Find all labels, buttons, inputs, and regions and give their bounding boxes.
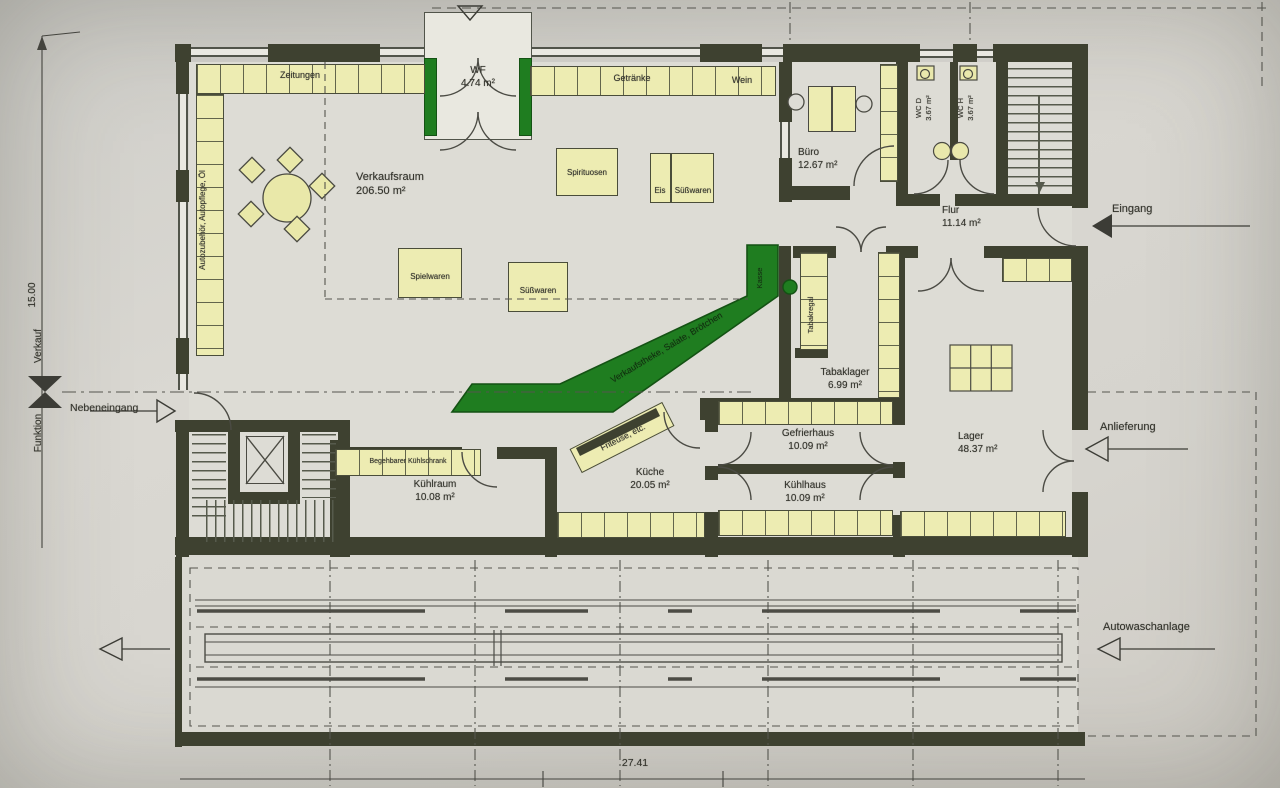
- window: [530, 47, 700, 57]
- annotation-anlieferung: Anlieferung: [1100, 420, 1200, 434]
- room-area: 206.50 m²: [356, 184, 486, 198]
- wall: [779, 246, 791, 412]
- room-name: WC H: [956, 98, 965, 118]
- carwash-exit-arrow: [100, 638, 122, 660]
- room-name: Kühlhaus: [784, 480, 826, 491]
- room-label-verkaufsraum: Verkaufsraum 206.50 m²: [356, 170, 486, 199]
- room-label-lager: Lager 48.37 m²: [958, 430, 1048, 456]
- shelf-label-suesswaren-2: Süßwaren: [508, 286, 568, 296]
- room-label-kuehlhaus: Kühlhaus 10.09 m²: [755, 479, 855, 505]
- room-area: 6.99 m²: [795, 379, 895, 392]
- wall: [175, 557, 182, 747]
- eingang-arrow: [1092, 214, 1112, 238]
- wall: [783, 44, 920, 62]
- room-name: Büro: [798, 147, 819, 158]
- desk-divider: [831, 86, 833, 132]
- room-area: 3.67 m²: [966, 78, 976, 138]
- room-name: WC D: [914, 98, 923, 118]
- window: [191, 47, 268, 57]
- shelf-label-eis: Eis: [646, 186, 674, 196]
- room-area: 20.05 m²: [600, 479, 700, 492]
- wall: [175, 420, 350, 432]
- staircase-upper-right: [1008, 68, 1072, 194]
- wall: [996, 62, 1008, 202]
- room-name: Kühlraum: [414, 479, 457, 490]
- shelf-label-tabakregal: Tabakregal: [806, 265, 822, 365]
- wall: [1072, 62, 1088, 208]
- room-area: 48.37 m²: [958, 443, 1048, 456]
- room-label-wc-h: WC H 3.67 m²: [956, 78, 984, 138]
- dimension-arrowhead: [37, 36, 47, 50]
- room-area: 10.08 m²: [385, 491, 485, 504]
- window: [178, 202, 188, 338]
- dimension-width: 27.41: [605, 757, 665, 771]
- wall: [993, 44, 1088, 62]
- elevator-shaft: [246, 436, 284, 484]
- wall: [893, 462, 905, 478]
- dimension-height: 15.00: [26, 266, 40, 324]
- wall: [268, 44, 380, 62]
- room-area: 12.67 m²: [798, 159, 888, 172]
- room-name: Lager: [958, 431, 984, 442]
- wall: [176, 170, 189, 202]
- window: [178, 374, 188, 390]
- room-area: 3.67 m²: [924, 78, 934, 138]
- shelf-gefrierhaus: [718, 401, 893, 425]
- wall: [1072, 246, 1088, 430]
- shelf-kueche: [557, 512, 705, 538]
- staircase-lower-left: [302, 434, 336, 498]
- wall: [896, 194, 940, 206]
- window: [780, 122, 790, 158]
- room-label-kuehlraum: Kühlraum 10.08 m²: [385, 478, 485, 504]
- stair-rail: [1038, 95, 1040, 194]
- wall: [705, 466, 718, 480]
- wall: [779, 62, 792, 122]
- room-label-kueche: Küche 20.05 m²: [600, 466, 700, 492]
- shelf-label-spielwaren: Spielwaren: [400, 272, 460, 282]
- window: [178, 94, 188, 170]
- autowaschanlage-arrow: [1098, 638, 1120, 660]
- room-name: Tabaklager: [821, 367, 870, 378]
- shelf-label-getraenke: Getränke: [592, 73, 672, 85]
- wall: [984, 246, 1072, 258]
- room-label-wf: WF 4.74 m²: [430, 64, 526, 90]
- room-name: Gefrierhaus: [782, 428, 834, 439]
- shelf-label-wein: Wein: [716, 75, 768, 87]
- carwash-interior: [182, 557, 1078, 732]
- annotation-eingang: Eingang: [1112, 202, 1202, 216]
- shelf-label-suesswaren: Süßwaren: [671, 186, 715, 196]
- shelf-lager-top: [1002, 258, 1072, 282]
- window: [380, 47, 425, 57]
- room-name: Küche: [636, 467, 664, 478]
- shelf-label-begehbarer-kuehlschrank: Begehbarer Kühlschrank: [338, 457, 478, 466]
- wall: [700, 44, 762, 62]
- counter-label-kasse: Kasse: [755, 250, 769, 306]
- carwash-wall: [175, 732, 1085, 746]
- wall: [705, 410, 718, 432]
- wall: [718, 464, 893, 474]
- room-label-flur: Flur 11.14 m²: [942, 204, 1012, 230]
- wall: [497, 447, 553, 459]
- room-area: 4.74 m²: [430, 77, 526, 90]
- room-label-buero: Büro 12.67 m²: [798, 146, 888, 172]
- room-label-tabaklager: Tabaklager 6.99 m²: [795, 366, 895, 392]
- shelf-lager-bottom: [900, 511, 1066, 537]
- wall: [1008, 194, 1072, 206]
- room-name: Verkaufsraum: [356, 171, 424, 183]
- room-name: WF: [470, 65, 486, 76]
- shelf-label-spirituosen: Spirituosen: [556, 168, 618, 178]
- anlieferung-arrow: [1086, 437, 1108, 461]
- wall: [176, 338, 189, 374]
- room-area: 11.14 m²: [942, 217, 1012, 230]
- shelf-kuehlhaus: [718, 510, 893, 536]
- window: [977, 49, 993, 58]
- window: [920, 49, 953, 58]
- room-label-gefrierhaus: Gefrierhaus 10.09 m²: [758, 427, 858, 453]
- room-area: 10.09 m²: [758, 440, 858, 453]
- window: [762, 47, 783, 57]
- wall: [953, 44, 977, 62]
- wall: [176, 44, 189, 94]
- room-area: 10.09 m²: [755, 492, 855, 505]
- shelf-label-zeitungen: Zeitungen: [262, 70, 338, 82]
- annotation-funktion: Funktion: [32, 393, 48, 473]
- annotation-nebeneingang: Nebeneingang: [70, 402, 160, 416]
- staircase-lower-left: [206, 500, 336, 542]
- room-label-wc-d: WC D 3.67 m²: [914, 78, 942, 138]
- wall: [779, 186, 850, 200]
- room-name: Flur: [942, 205, 959, 216]
- floor-plan-sheet: Verkaufsraum 206.50 m² WF 4.74 m² Büro 1…: [0, 0, 1280, 788]
- annotation-autowaschanlage: Autowaschanlage: [1103, 620, 1233, 634]
- shelf-label-autozubehoer: Autozubehör, Autopflege, Öl: [198, 110, 216, 330]
